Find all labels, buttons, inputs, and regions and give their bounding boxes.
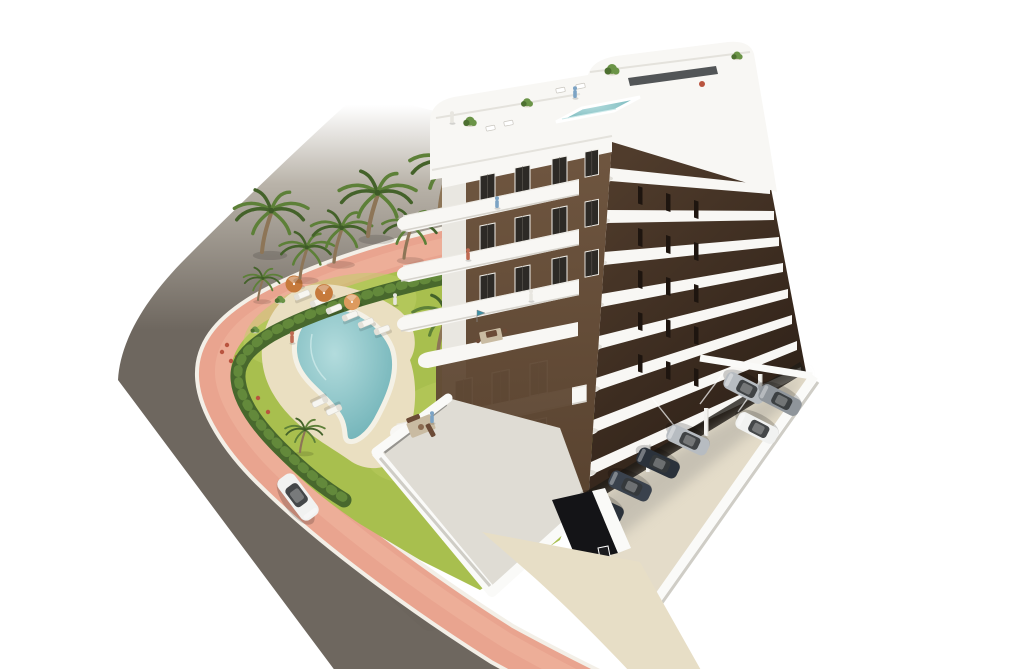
roof-lounge-chair <box>699 81 705 87</box>
side-slits-instance <box>638 228 643 247</box>
side-slits-instance <box>666 319 671 338</box>
side-slits-instance <box>638 312 643 331</box>
terrace-chair <box>476 339 480 343</box>
side-slits-instance <box>694 284 699 303</box>
side-slits-instance <box>666 193 671 212</box>
side-slits-instance <box>694 242 699 261</box>
front-windows-instance <box>585 199 599 227</box>
side-slits-instance <box>666 361 671 380</box>
side-slits-instance <box>638 186 643 205</box>
flowers-instance <box>229 359 233 363</box>
flowers-instance <box>220 350 224 354</box>
side-slits-instance <box>638 354 643 373</box>
render-canvas <box>0 0 1020 669</box>
terrace-chair <box>503 329 507 333</box>
front-windows-instance <box>585 249 599 277</box>
flowers-instance <box>225 343 229 347</box>
pillars-instance <box>704 408 709 436</box>
terrace-coffee-table <box>418 424 424 430</box>
side-slits-instance <box>638 270 643 289</box>
front-windows-instance <box>585 149 599 177</box>
architectural-render <box>0 0 1020 669</box>
side-slits-instance <box>666 235 671 254</box>
side-slits-instance <box>694 200 699 219</box>
flowers-instance <box>256 396 260 400</box>
side-slits-instance <box>666 277 671 296</box>
side-slits-instance <box>694 326 699 345</box>
side-slits-instance <box>694 368 699 387</box>
flowers-instance <box>266 410 270 414</box>
